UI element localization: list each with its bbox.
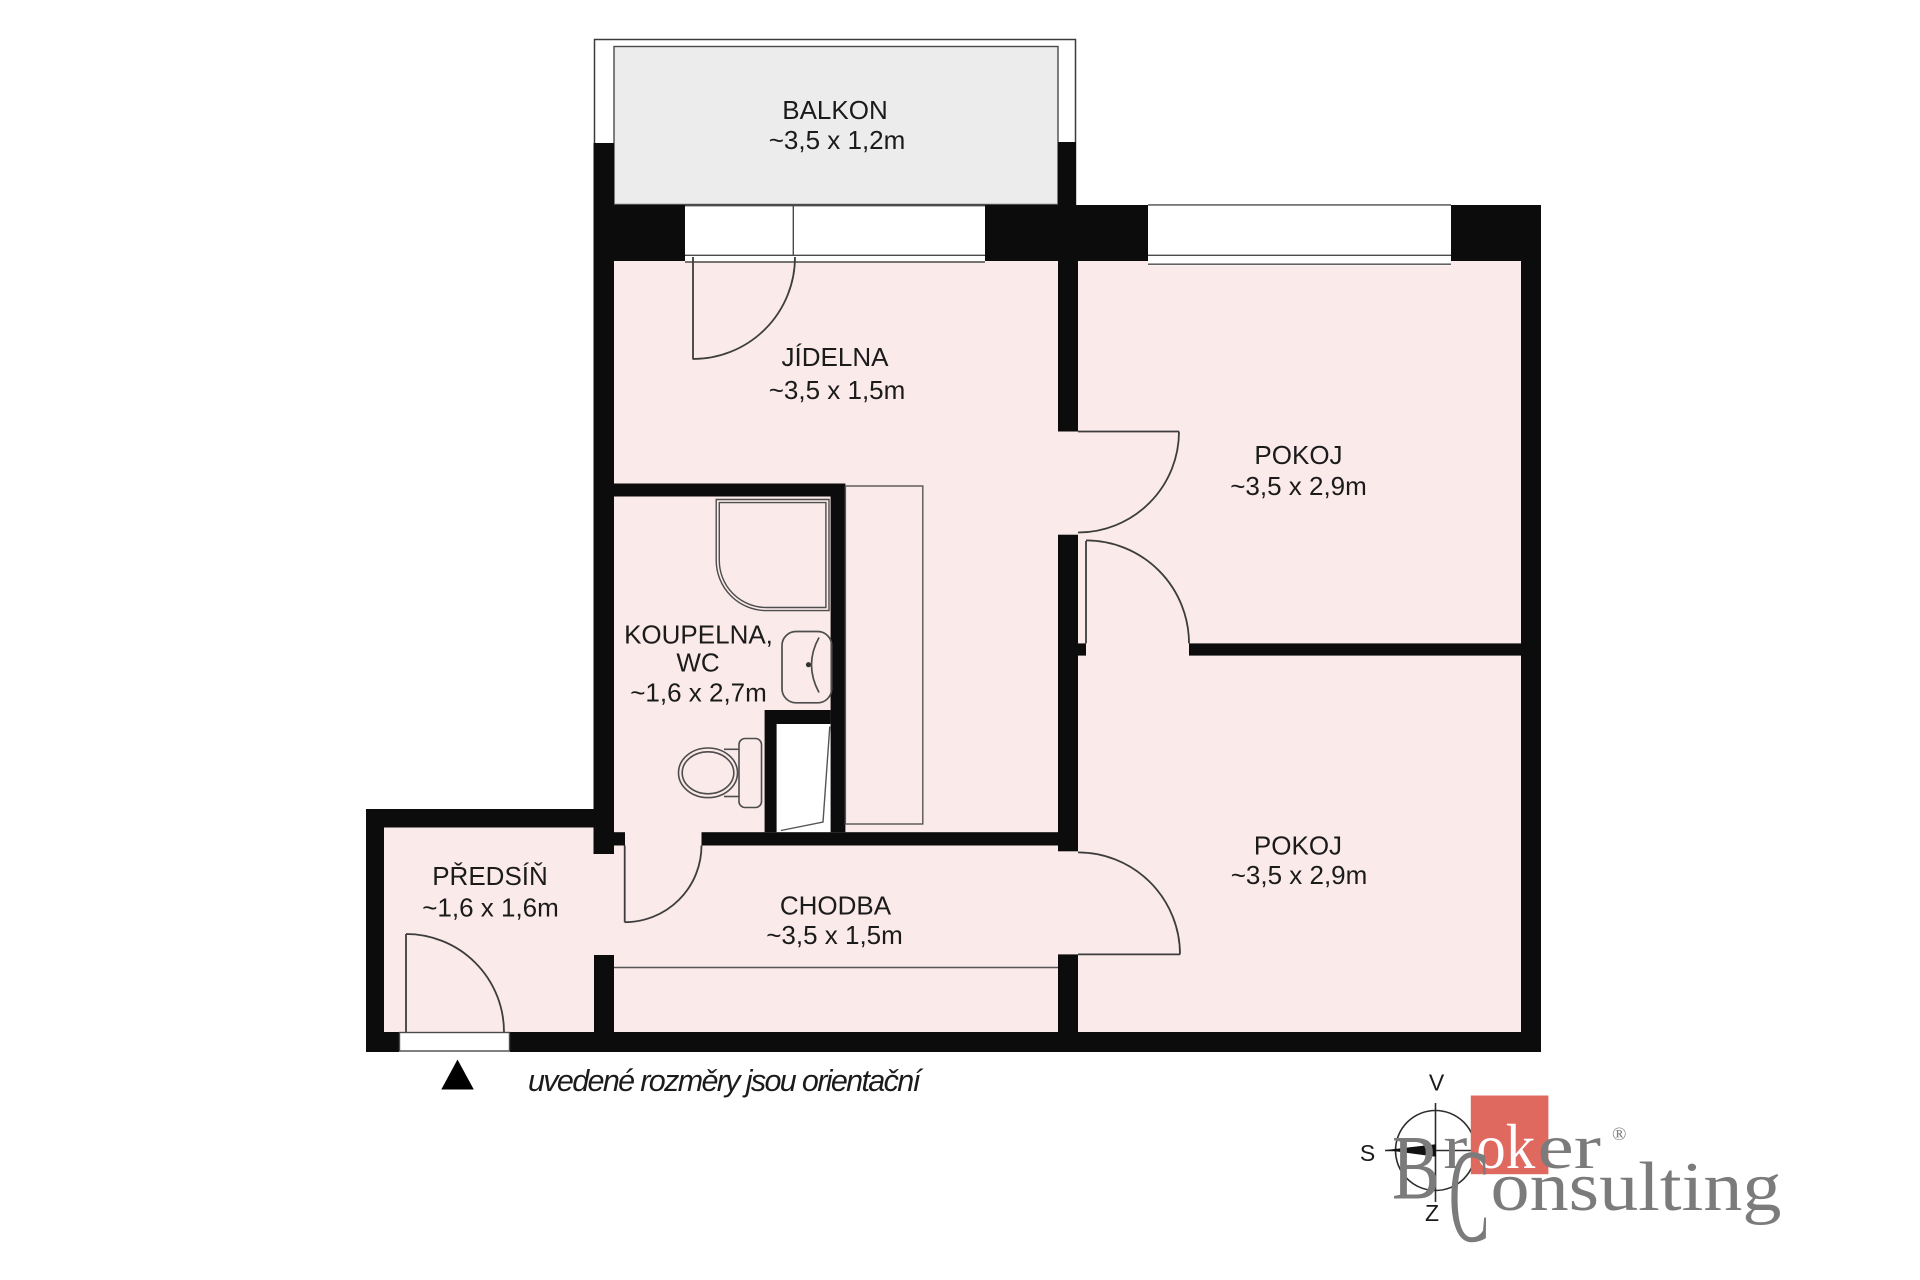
svg-text:onsulting: onsulting bbox=[1491, 1149, 1782, 1226]
svg-text:WC: WC bbox=[676, 648, 719, 678]
svg-text:~3,5 x 2,9m: ~3,5 x 2,9m bbox=[1231, 860, 1368, 890]
svg-text:C: C bbox=[1449, 1122, 1490, 1270]
svg-text:JÍDELNA: JÍDELNA bbox=[782, 342, 890, 372]
svg-text:S: S bbox=[1360, 1140, 1375, 1166]
svg-text:~3,5 x 2,9m: ~3,5 x 2,9m bbox=[1230, 471, 1367, 501]
svg-text:POKOJ: POKOJ bbox=[1254, 831, 1342, 861]
svg-text:KOUPELNA,: KOUPELNA, bbox=[624, 620, 773, 650]
svg-text:V: V bbox=[1429, 1070, 1445, 1096]
svg-text:POKOJ: POKOJ bbox=[1254, 440, 1342, 470]
svg-text:CHODBA: CHODBA bbox=[780, 891, 892, 921]
svg-text:PŘEDSÍŇ: PŘEDSÍŇ bbox=[432, 861, 548, 891]
svg-text:~3,5 x 1,5m: ~3,5 x 1,5m bbox=[766, 920, 903, 950]
svg-text:~3,5 x 1,5m: ~3,5 x 1,5m bbox=[769, 375, 906, 405]
svg-text:uvedené rozměry jsou orientačn: uvedené rozměry jsou orientační bbox=[528, 1064, 924, 1098]
svg-text:~1,6 x 1,6m: ~1,6 x 1,6m bbox=[422, 893, 559, 923]
svg-text:BALKON: BALKON bbox=[782, 95, 888, 125]
svg-text:®: ® bbox=[1612, 1124, 1626, 1145]
svg-text:B: B bbox=[1392, 1117, 1440, 1219]
svg-text:~1,6 x 2,7m: ~1,6 x 2,7m bbox=[630, 678, 767, 708]
svg-text:~3,5 x 1,2m: ~3,5 x 1,2m bbox=[769, 125, 906, 155]
